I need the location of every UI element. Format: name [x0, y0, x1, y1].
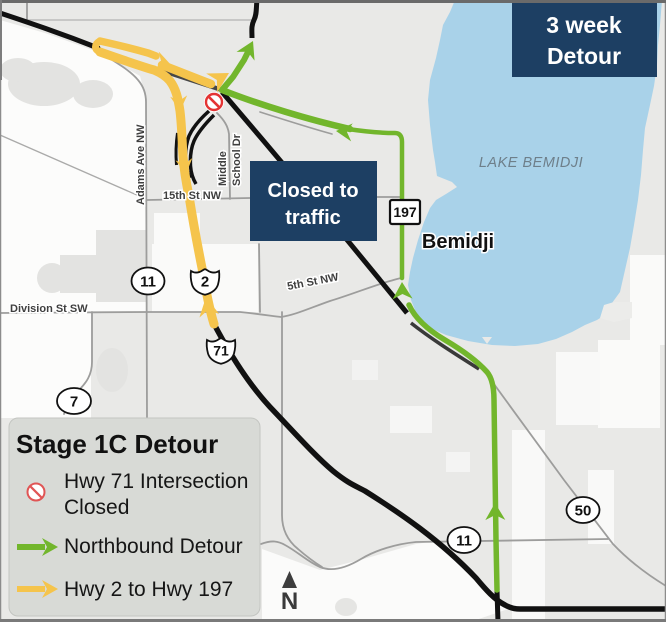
- svg-text:Detour: Detour: [547, 43, 621, 69]
- svg-text:Division St SW: Division St SW: [10, 303, 88, 315]
- svg-text:71: 71: [213, 343, 229, 359]
- svg-text:Adams Ave NW: Adams Ave NW: [135, 124, 147, 205]
- svg-text:LAKE BEMIDJI: LAKE BEMIDJI: [479, 155, 583, 171]
- svg-text:15th St NW: 15th St NW: [163, 190, 222, 202]
- svg-text:traffic: traffic: [285, 207, 341, 229]
- svg-text:Closed: Closed: [64, 496, 129, 519]
- svg-text:N: N: [281, 588, 298, 615]
- svg-text:50: 50: [575, 503, 592, 520]
- svg-text:Hwy 71 Intersection: Hwy 71 Intersection: [64, 470, 248, 493]
- svg-text:Bemidji: Bemidji: [422, 231, 494, 253]
- svg-text:11: 11: [140, 274, 156, 291]
- svg-text:11: 11: [456, 533, 472, 550]
- svg-text:7: 7: [70, 394, 78, 411]
- svg-text:Middle: Middle: [217, 151, 229, 186]
- svg-text:Stage 1C Detour: Stage 1C Detour: [16, 429, 218, 459]
- svg-text:3 week: 3 week: [546, 12, 622, 38]
- svg-text:Closed to: Closed to: [267, 180, 358, 202]
- svg-text:197: 197: [393, 204, 417, 220]
- svg-text:Hwy 2 to Hwy 197: Hwy 2 to Hwy 197: [64, 578, 233, 601]
- svg-text:2: 2: [201, 274, 209, 291]
- svg-text:School Dr: School Dr: [231, 133, 243, 186]
- svg-text:Northbound Detour: Northbound Detour: [64, 535, 243, 558]
